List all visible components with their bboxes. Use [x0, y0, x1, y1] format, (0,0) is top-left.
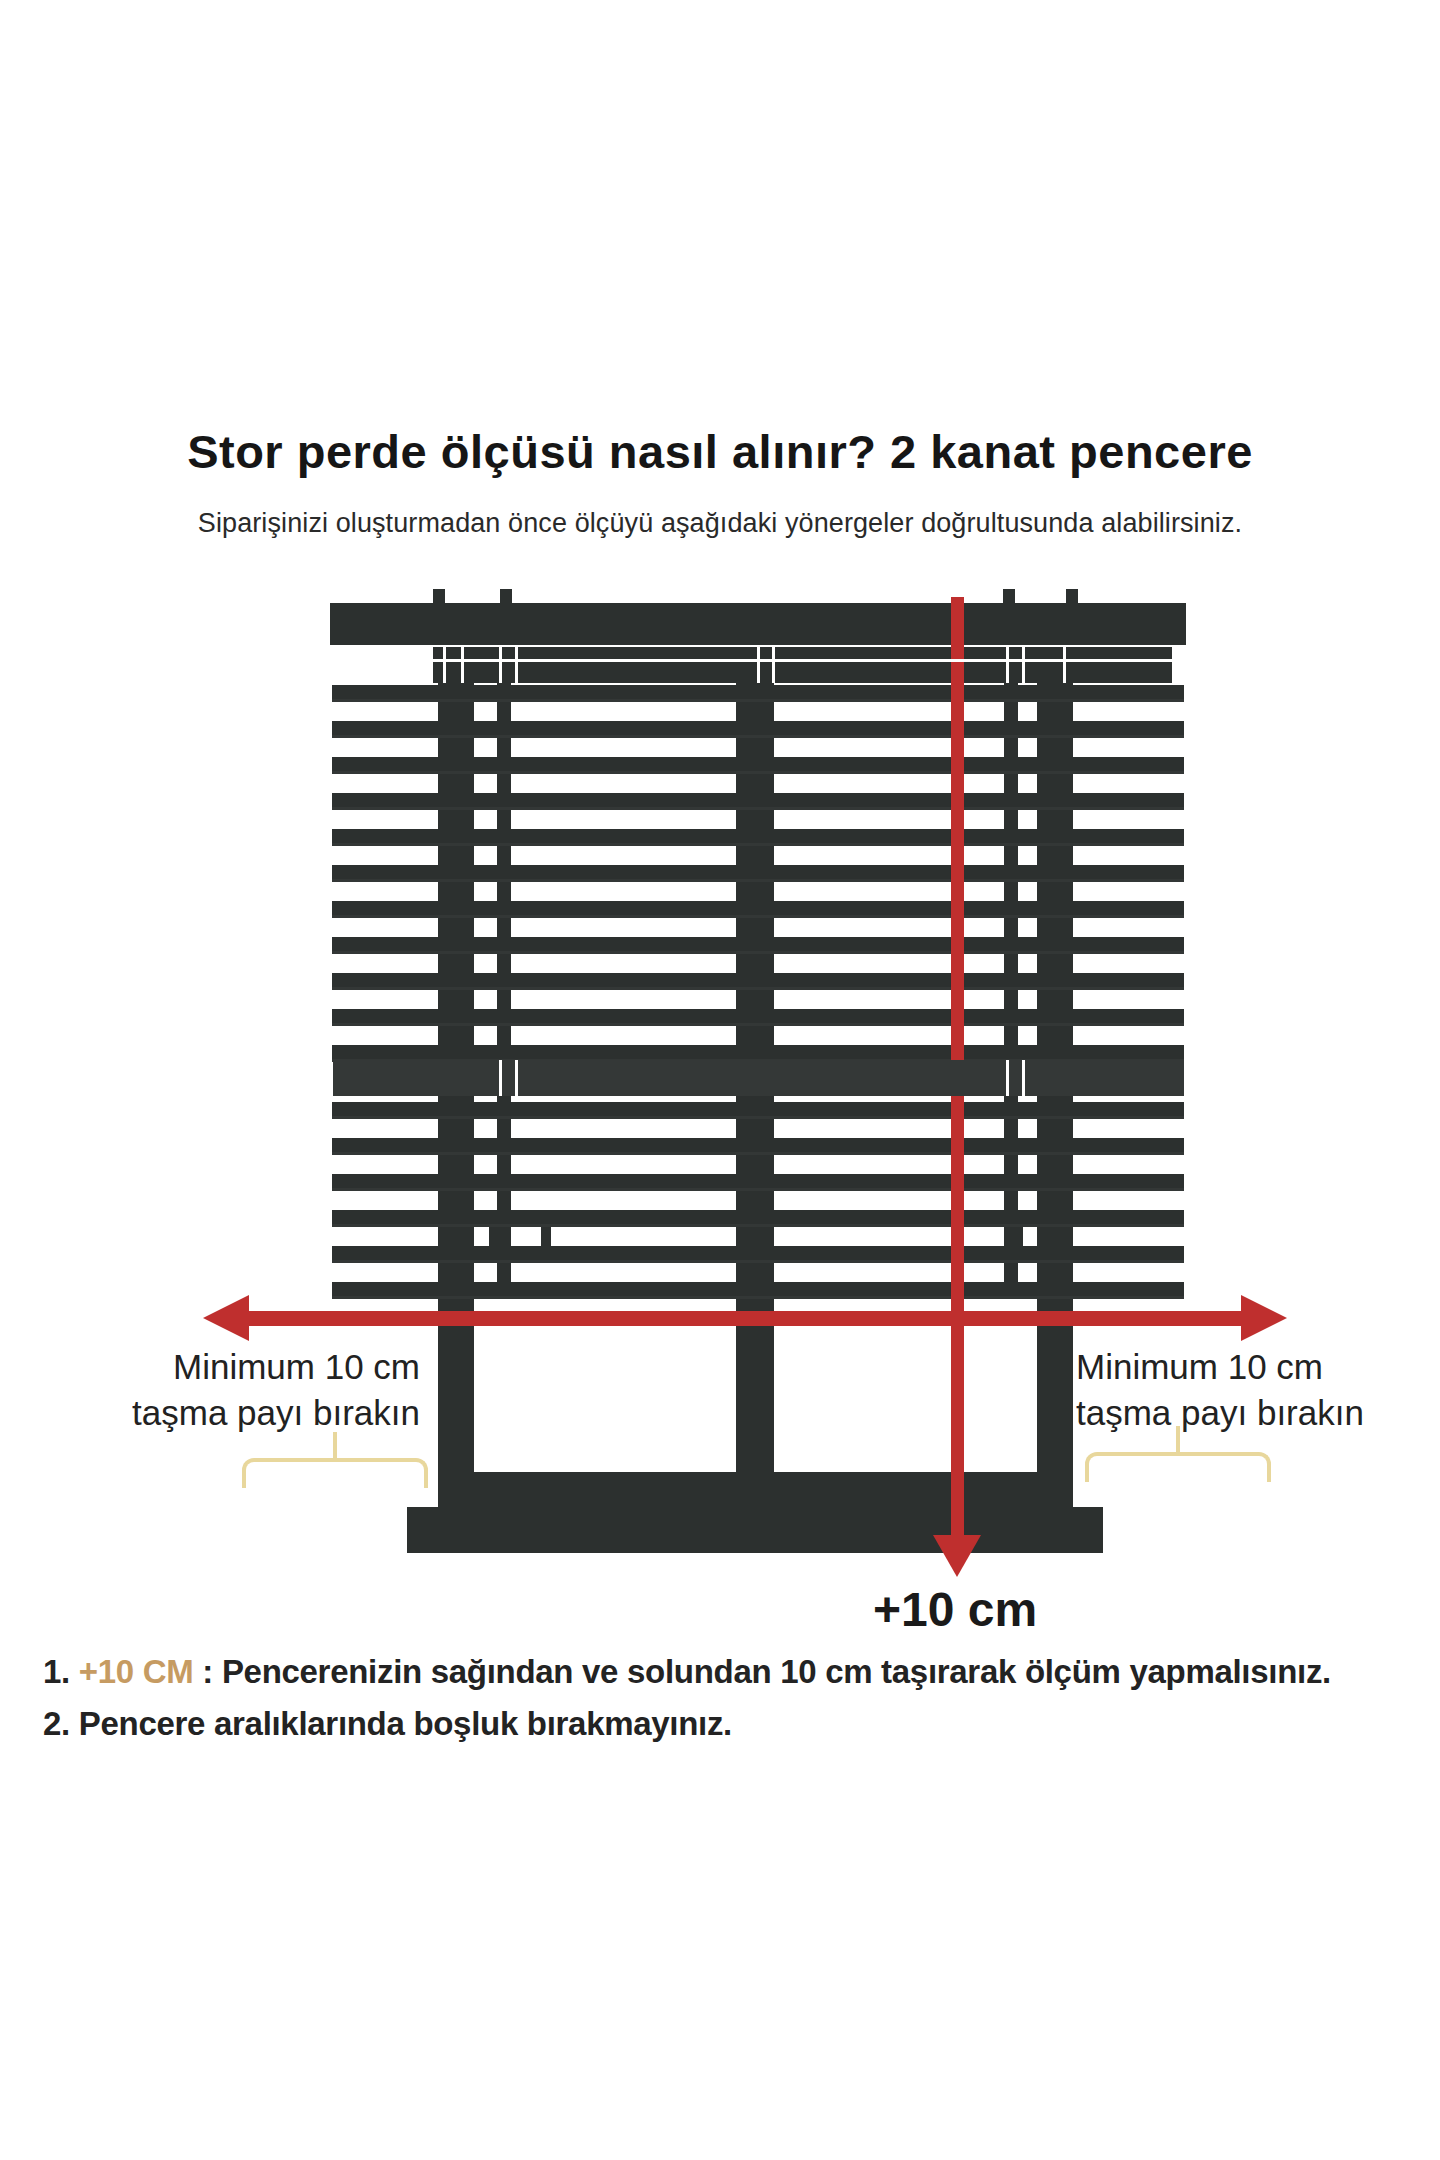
- blind-slat: [332, 937, 1184, 954]
- frame-hairline: [1006, 647, 1009, 683]
- frame-hairline: [461, 647, 464, 683]
- right-overhang-brace: [1085, 1452, 1271, 1482]
- frame-hairline: [772, 647, 775, 683]
- width-arrow-head-right: [1241, 1295, 1287, 1341]
- note-1-highlight: +10 CM: [79, 1653, 194, 1690]
- page-title: Stor perde ölçüsü nasıl alınır? 2 kanat …: [0, 424, 1440, 479]
- frame-hairline: [515, 1060, 518, 1096]
- note-item-1: 1. +10 CM : Pencerenizin sağından ve sol…: [43, 1646, 1403, 1698]
- blind-slat: [332, 1282, 1184, 1299]
- frame-hairline: [1022, 647, 1025, 683]
- left-overhang-label: Minimum 10 cm taşma payı bırakın: [50, 1344, 420, 1436]
- left-overhang-label-line2: taşma payı bırakın: [50, 1390, 420, 1436]
- width-arrow-line: [239, 1311, 1251, 1326]
- blind-slat: [332, 901, 1184, 918]
- measurement-guide-page: Stor perde ölçüsü nasıl alınır? 2 kanat …: [0, 0, 1440, 2160]
- window-sill: [407, 1507, 1103, 1553]
- left-overhang-label-line1: Minimum 10 cm: [50, 1344, 420, 1390]
- frame-hairline: [757, 647, 760, 683]
- window-bottom-rail: [438, 1472, 1073, 1507]
- note-item-2: 2. Pencere aralıklarında boşluk bırakmay…: [43, 1698, 1403, 1750]
- blind-slat: [332, 1138, 1184, 1155]
- frame-hairline: [1063, 647, 1066, 683]
- blind-slat: [332, 973, 1184, 990]
- blind-slat: [332, 1102, 1184, 1119]
- right-overhang-label: Minimum 10 cm taşma payı bırakın: [1076, 1344, 1440, 1436]
- right-overhang-label-line1: Minimum 10 cm: [1076, 1344, 1440, 1390]
- blind-mid-rail: [333, 1060, 1184, 1096]
- blind-slat: [332, 1210, 1184, 1227]
- frame-hairline: [499, 647, 502, 683]
- blind-slat: [332, 1174, 1184, 1191]
- blind-slat: [332, 793, 1184, 810]
- blind-slat: [332, 1246, 1184, 1263]
- height-arrow-head-down: [933, 1535, 981, 1577]
- page-subtitle: Siparişinizi oluşturmadan önce ölçüyü aş…: [0, 508, 1440, 539]
- blind-header-rail: [330, 603, 1186, 645]
- instruction-notes: 1. +10 CM : Pencerenizin sağından ve sol…: [43, 1646, 1403, 1750]
- blind-slat: [332, 685, 1184, 702]
- blind-slat: [332, 1009, 1184, 1026]
- blind-slat: [332, 865, 1184, 882]
- blind-slat: [332, 757, 1184, 774]
- brace-stem: [333, 1432, 337, 1460]
- frame-hairline: [1022, 1060, 1025, 1096]
- blind-cord-right: [1004, 647, 1018, 1296]
- blind-slat: [332, 829, 1184, 846]
- frame-hairline: [443, 647, 446, 683]
- frame-hairline: [433, 659, 1172, 662]
- frame-hairline: [515, 647, 518, 683]
- frame-hairline: [499, 1060, 502, 1096]
- note-1-number: 1.: [43, 1653, 79, 1690]
- left-overhang-brace: [242, 1458, 428, 1488]
- right-overhang-label-line2: taşma payı bırakın: [1076, 1390, 1440, 1436]
- blind-slat: [332, 721, 1184, 738]
- note-1-text: : Pencerenizin sağından ve solundan 10 c…: [193, 1653, 1330, 1690]
- plus-10-cm-label: +10 cm: [805, 1582, 1105, 1637]
- frame-hairline: [1006, 1060, 1009, 1096]
- width-arrow-head-left: [203, 1295, 249, 1341]
- blind-cord-left: [497, 647, 511, 1296]
